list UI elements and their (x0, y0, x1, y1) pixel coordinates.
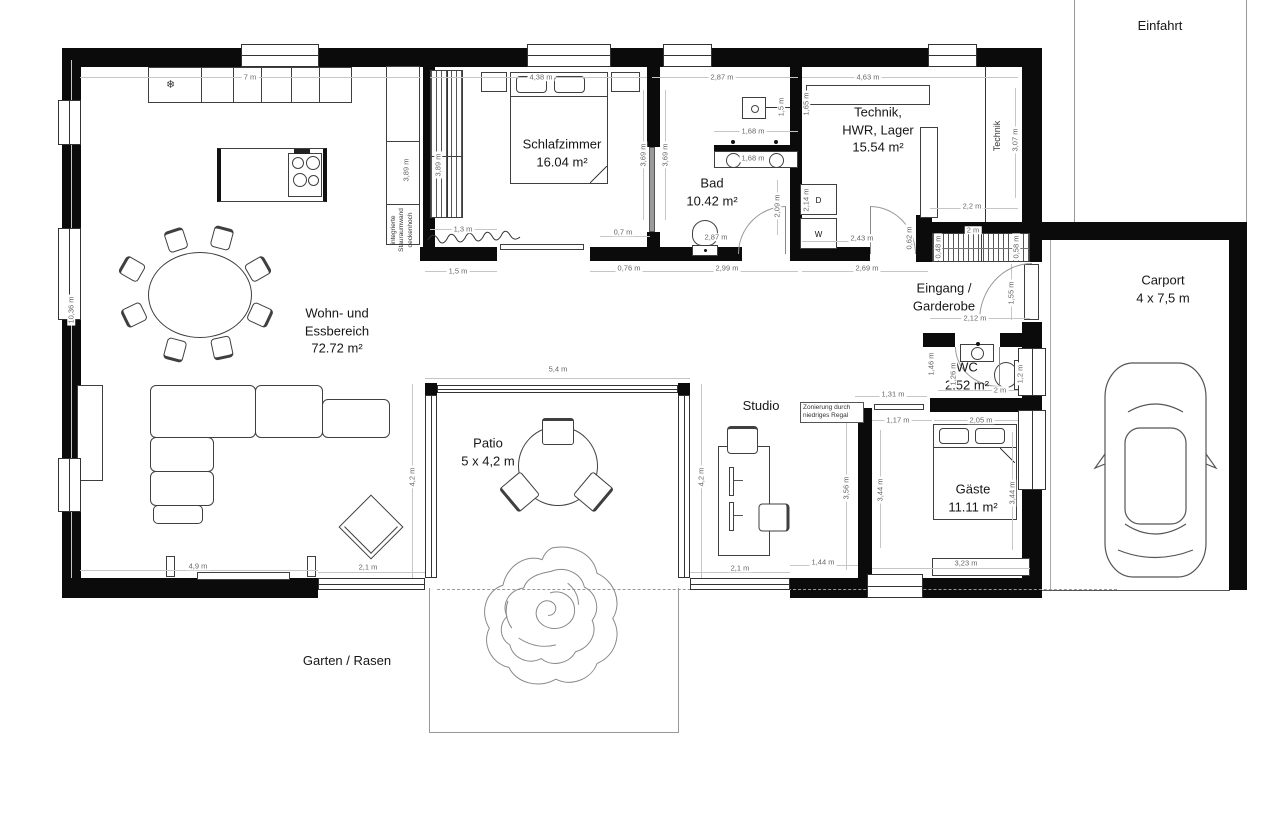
sofa-ottoman (153, 505, 203, 524)
nightstand (611, 72, 640, 92)
dim-schrank-breite2: 1,5 m (447, 267, 470, 275)
floor-plan: ❄ (0, 0, 1280, 826)
counter-divider (319, 68, 320, 102)
dim-regal-wand: 3,56 m (842, 475, 850, 502)
burner (292, 157, 304, 169)
room-area: 16.04 m² (536, 154, 587, 169)
dimension-line (425, 378, 690, 379)
label-patio: Patio5 x 4,2 m (461, 434, 514, 469)
dim-wc-links2: 1,26 m (949, 361, 957, 388)
dim-bad-wand: 3,69 m (661, 142, 669, 169)
sofa-chaise (322, 399, 390, 438)
wall-bottom (923, 578, 1032, 598)
monitor (729, 467, 734, 496)
dim-flur: 1,31 m (880, 390, 907, 398)
dim-bad-tuer: 2,09 m (773, 193, 781, 220)
studio-chair (727, 426, 758, 454)
nightstand (481, 72, 507, 92)
shower-head (742, 97, 766, 119)
dim-left: 10,36 m (67, 294, 75, 325)
counter-divider (201, 68, 202, 102)
room-name: Bad (700, 175, 723, 190)
room-name: Eingang / Garderobe (913, 280, 975, 313)
dim-hwr-tuer2: 0,62 m (905, 225, 913, 252)
monitor-stand (734, 480, 743, 481)
dimension-line (872, 568, 1030, 569)
pillow (554, 76, 585, 93)
window-gaeste-ost (1018, 410, 1046, 490)
room-label-wohnen: Wohn- und Essbereich72.72 m² (305, 305, 369, 358)
patio-beam (437, 385, 678, 393)
cooktop-control (294, 149, 310, 154)
room-name: Schlafzimmer (523, 136, 602, 151)
label-einfahrt: Einfahrt (1138, 17, 1183, 35)
dim-garderobe-rechts: 0,58 m (1012, 234, 1020, 261)
room-label-bad: Bad10.42 m² (686, 174, 737, 209)
carport-left-line (1050, 240, 1051, 590)
dim-top-schlafzimmer: 4,38 m (528, 73, 555, 81)
window-bad (663, 44, 712, 67)
wall-technik-sued (802, 247, 870, 261)
dim-studio-unten: 2,1 m (729, 564, 752, 572)
flush-dot (704, 249, 707, 252)
hwr-cabinet (920, 127, 938, 218)
dim-eingang-tuer: 1,55 m (1007, 280, 1015, 307)
area-size: 4 x 7,5 m (1136, 290, 1189, 305)
dimension-line (802, 77, 1018, 78)
patio-chair (542, 418, 574, 445)
sofa-section (150, 385, 256, 438)
burner (293, 173, 307, 187)
dimension-line (318, 572, 425, 573)
wall-bottom (62, 578, 318, 598)
dim-tuer-schlafzimmer: 0,7 m (612, 228, 635, 236)
window-schlafzimmer (527, 44, 611, 67)
dim-gaeste-links: 3,44 m (876, 477, 884, 504)
burner (308, 175, 319, 186)
note-zonierung: Zonierung durch niedriges Regal (800, 402, 864, 423)
dim-garderobe: 2 m (965, 226, 982, 234)
car-icon (1098, 358, 1213, 582)
window-sill-bench (197, 572, 290, 580)
dim-tuer-schlafzimmer2: 0,76 m (616, 264, 643, 272)
wall-right (1022, 490, 1042, 598)
dim-hwr-regal: 2,2 m (961, 202, 984, 210)
sofa-section (150, 471, 214, 506)
room-name: WC (956, 359, 978, 374)
wall-gaeste-west (858, 408, 872, 578)
dim-top-technik: 4,63 m (855, 73, 882, 81)
pocket-door-bad (649, 147, 655, 232)
wall-top (712, 48, 928, 67)
area-name: Carport (1141, 272, 1184, 287)
dim-waschtisch2: 1,68 m (740, 154, 767, 162)
tap-icon (976, 342, 980, 346)
dim-patio-links: 4,2 m (408, 466, 416, 489)
dim-patio-rechts: 4,2 m (697, 466, 705, 489)
dim-bad-rechts: 1,65 m (802, 91, 810, 118)
dim-wc-links: 1,46 m (927, 351, 935, 378)
dim-top-kitchen: 7 m (242, 73, 259, 81)
window-living-1 (58, 100, 81, 145)
dim-technik-schacht: 3,07 m (1011, 127, 1019, 154)
pillow (975, 428, 1005, 444)
dim-wc-breite: 2 m (992, 386, 1009, 394)
glass-front-studio (690, 578, 790, 590)
area-name: Garten / Rasen (303, 653, 391, 668)
dim-hwr-geraete: 2,14 m (802, 187, 810, 214)
label-carport: Carport4 x 7,5 m (1136, 271, 1189, 306)
door-jamb (166, 556, 175, 577)
dining-table (148, 252, 252, 338)
wall-wc-nord (923, 333, 955, 347)
tap-icon (774, 140, 778, 144)
wardrobe-schlafzimmer (430, 70, 463, 218)
wall-carport-right (1229, 222, 1247, 590)
tap-icon (731, 140, 735, 144)
room-name: Wohn- und Essbereich (305, 306, 369, 339)
room-label-technik: Technik, HWR, Lager15.54 m² (842, 104, 914, 157)
room-label-schlafzimmer: Schlafzimmer16.04 m² (523, 135, 602, 170)
shower-head-inner (751, 105, 759, 113)
note-stauraumwand: integrierte Stauraumwand deckenhoch (390, 202, 415, 258)
hwr-shelf (806, 85, 930, 105)
window-kitchen (241, 44, 319, 67)
room-name: Gäste (956, 481, 991, 496)
wall-bad-west (647, 66, 660, 147)
dining-chair (162, 337, 187, 363)
dim-garderobe-links: 0,48 m (934, 234, 942, 261)
dining-chair (163, 226, 189, 253)
sofa-section (150, 437, 214, 472)
area-name: Einfahrt (1138, 18, 1183, 33)
einfahrt-left-line (1074, 0, 1075, 222)
tree-icon (478, 542, 626, 687)
dim-patio-breite: 5,4 m (547, 365, 570, 373)
note-technik-schacht: Technik (992, 104, 1004, 168)
dim-gaeste-unten: 3,23 m (953, 559, 980, 567)
pillow (939, 428, 969, 444)
wall-bottom (790, 578, 867, 598)
storage-divider (387, 141, 419, 142)
sofa-section (255, 385, 323, 438)
room-area: 11.11 m² (948, 499, 997, 514)
dim-gaeste-bett: 2,05 m (968, 416, 995, 424)
dim-wohnzimmer-unten: 4,9 m (187, 562, 210, 570)
dim-gaeste-rechts: 3,44 m (1008, 480, 1016, 507)
room-area: 10.42 m² (686, 193, 737, 208)
dim-stauraumwand: 3,89 m (402, 157, 410, 184)
door-jamb (307, 556, 316, 577)
dim-flur-unten: 1,44 m (810, 558, 837, 566)
area-size: 5 x 4,2 m (461, 453, 514, 468)
room-area: 72.72 m² (311, 341, 362, 356)
fridge-icon: ❄ (166, 78, 175, 91)
bench-gaeste (932, 558, 1030, 576)
monitor-stand (734, 515, 743, 516)
dim-eingang: 2,12 m (962, 314, 989, 322)
wall-top (611, 48, 663, 67)
monitor (729, 502, 734, 531)
wardrobe-rail (447, 71, 448, 217)
wall-top (319, 48, 527, 67)
patio-glass-west (425, 395, 437, 578)
patio-post (425, 383, 437, 395)
dim-schrank: 3,89 m (434, 152, 442, 179)
sink (769, 153, 784, 168)
technik-schacht-wall (985, 66, 986, 222)
label-garten: Garten / Rasen (303, 652, 391, 670)
bed-headboard-line (511, 96, 607, 97)
einfahrt-right-line (1246, 0, 1247, 222)
lounge-chair (338, 494, 403, 559)
counter-divider (261, 68, 262, 102)
patio-glass-ost (678, 395, 690, 578)
room-label-studio: Studio (743, 397, 780, 415)
dim-sessel: 2,1 m (357, 563, 380, 571)
glass-front-wohnen (318, 578, 425, 590)
room-name: Studio (743, 398, 780, 413)
room-area: 15.54 m² (852, 140, 903, 155)
dim-wc-rechts: 1,2 m (1016, 363, 1024, 386)
carport-bottom-line (1042, 590, 1230, 591)
dim-bad-breite: 2,99 m (714, 264, 741, 272)
dim-hwr-tuer: 2,43 m (849, 234, 876, 242)
dining-chair (120, 301, 149, 329)
counter-divider (233, 68, 234, 102)
dim-gaeste-oben: 1,17 m (885, 416, 912, 424)
dim-bad-unten: 2,87 m (703, 233, 730, 241)
studio-desk (718, 446, 770, 556)
wall-wc-nord (1000, 333, 1032, 347)
burner (306, 156, 320, 170)
low-shelf-regal (874, 404, 924, 410)
dim-dusche: 1,5 m (777, 96, 785, 119)
dim-schlafzimmer-wand: 3,69 m (639, 142, 647, 169)
window-gaeste-sued (867, 574, 923, 598)
window-living-3 (58, 458, 81, 512)
wall-top (62, 48, 241, 67)
dining-chair (210, 335, 234, 361)
room-label-gaeste: Gäste11.11 m² (948, 480, 997, 515)
dim-hwr-unten: 2,69 m (854, 264, 881, 272)
dim-waschtisch: 1,68 m (740, 127, 767, 135)
lounge-chair-inner (344, 500, 398, 554)
patio-post (678, 383, 690, 395)
area-name: Patio (473, 435, 503, 450)
washer: W (800, 218, 837, 249)
dining-chair (117, 255, 146, 283)
toilet-tank (692, 245, 718, 256)
room-name: Technik, HWR, Lager (842, 105, 914, 138)
wall-carport-top (1042, 222, 1247, 240)
window-technik (928, 44, 977, 67)
counter-divider (291, 68, 292, 102)
dim-schrank-breite: 1,3 m (452, 225, 475, 233)
room-label-eingang: Eingang / Garderobe (913, 279, 975, 314)
dim-top-bad: 2,87 m (709, 73, 736, 81)
studio-chair (759, 504, 790, 532)
wall-wc-sued (930, 398, 1032, 412)
dining-chair (209, 225, 234, 251)
